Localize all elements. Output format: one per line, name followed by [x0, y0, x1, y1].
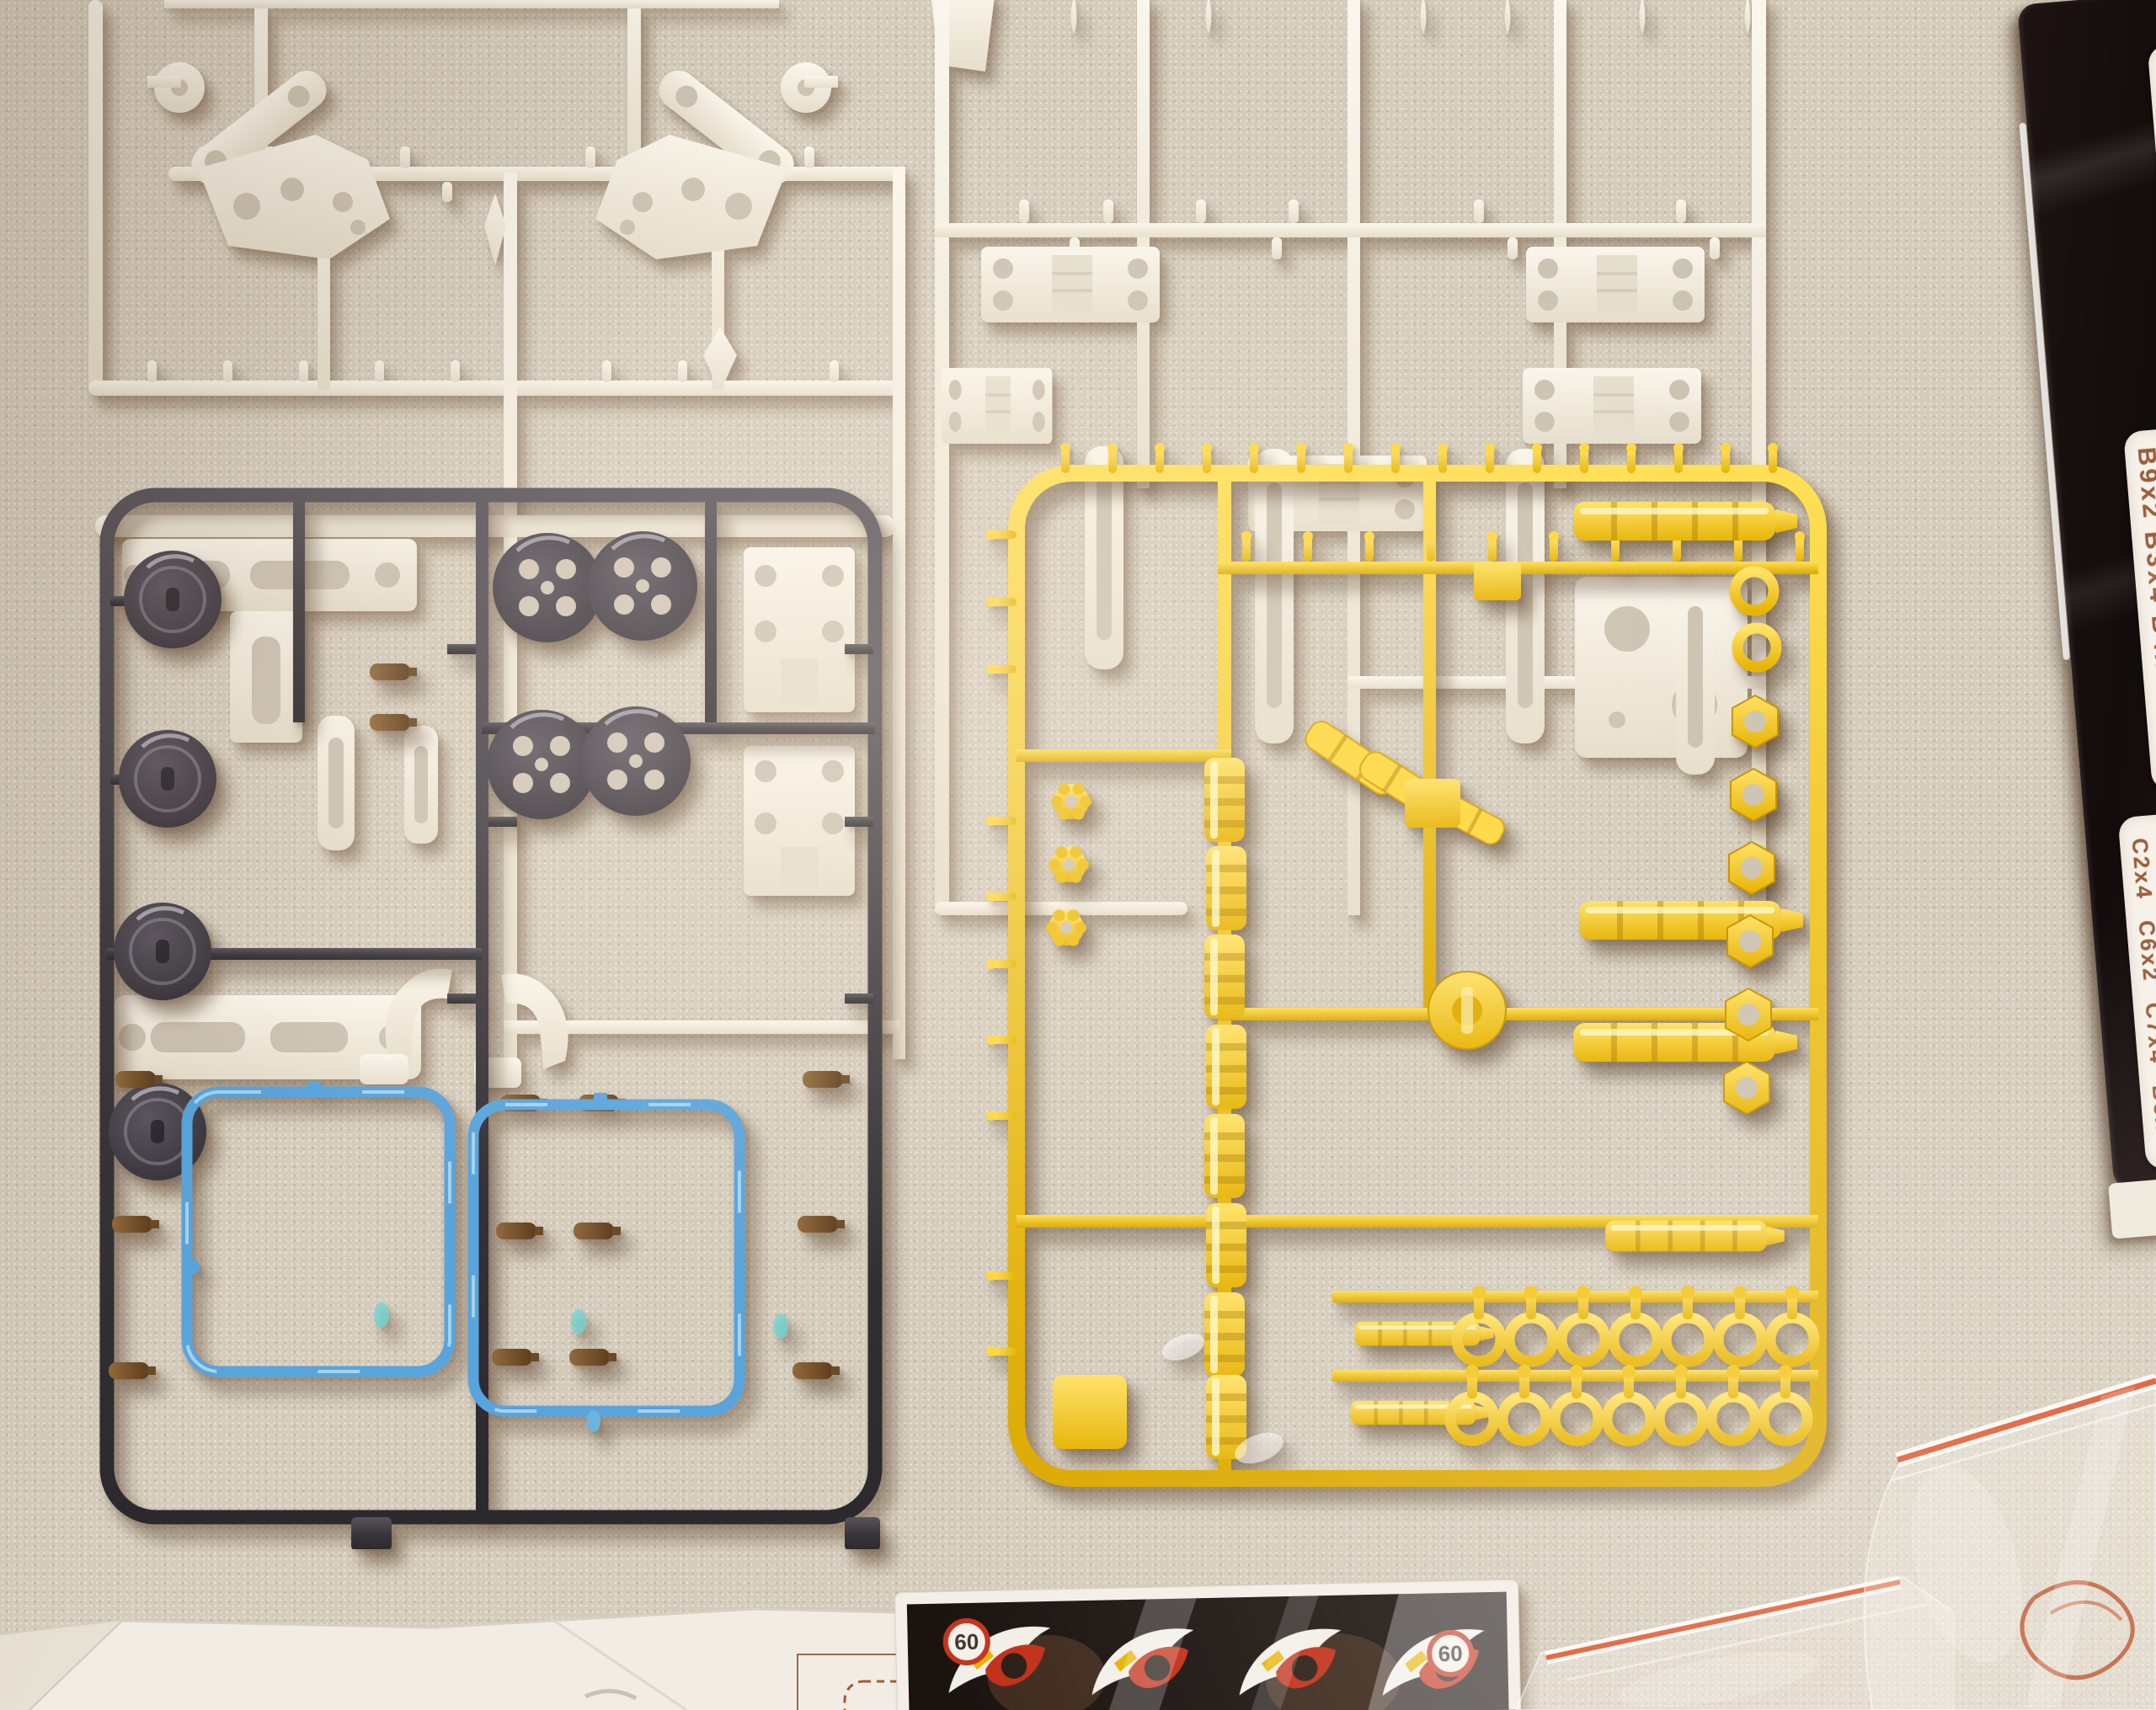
- yellow-runner: [969, 425, 1886, 1545]
- part-label: B8x4: [2147, 1084, 2156, 1148]
- part-label: C2x4: [2127, 837, 2156, 901]
- part-label: B3x4: [2138, 530, 2156, 606]
- speed-limit-value: 60: [954, 1629, 979, 1655]
- part-label: C6x2: [2133, 919, 2156, 983]
- dark-runner: [55, 455, 914, 1549]
- card-item: B9x2: [2132, 426, 2156, 523]
- part-label: B4x2: [2145, 614, 2156, 690]
- card-item: B8x4: [2147, 1073, 2156, 1149]
- card-item: C7x4: [2140, 991, 2156, 1068]
- speed-limit-roundel: 60: [945, 1620, 988, 1663]
- hinge-plate-part: [981, 247, 1160, 322]
- part-label: C7x4: [2140, 1001, 2156, 1065]
- card-item: A8x2: [2152, 678, 2156, 775]
- card-item: B3x4: [2138, 509, 2156, 606]
- photo-scene: A1x1 A2x2 A7x1 C1x8 B9x2 B3x4: [0, 0, 2156, 1710]
- decal-sheet: 60 60: [893, 1574, 1523, 1710]
- eyelet-grid: [1450, 1286, 1814, 1441]
- card-item: C2x4: [2126, 826, 2156, 903]
- card-item: C6x2: [2132, 908, 2156, 985]
- ziplock-bag-right: [1849, 1345, 2156, 1710]
- part-label: B9x2: [2132, 446, 2156, 522]
- parts-reference-card: A1x1 A2x2 A7x1 C1x8 B9x2 B3x4: [2017, 0, 2156, 1243]
- card-item: B4x2: [2145, 594, 2156, 690]
- cylinder-barrel-parts: [1204, 502, 1803, 1459]
- round-boss-part: [1428, 972, 1506, 1049]
- part-label: A8x2: [2152, 698, 2156, 774]
